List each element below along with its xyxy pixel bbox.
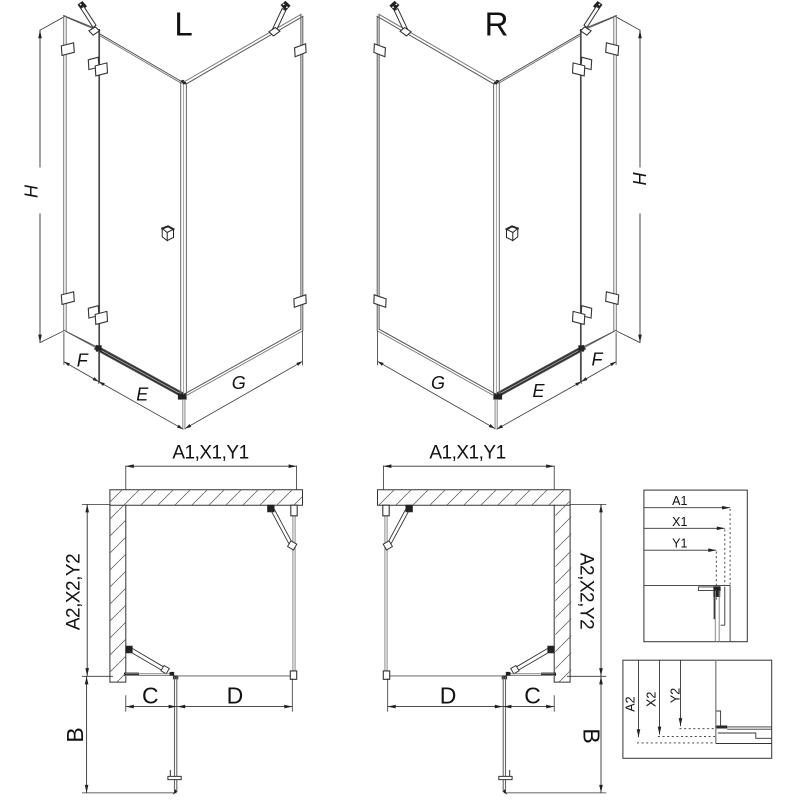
svg-text:C: C: [524, 683, 541, 709]
svg-text:Y1: Y1: [672, 537, 687, 551]
svg-text:E: E: [532, 381, 545, 401]
svg-text:X1: X1: [672, 515, 687, 529]
svg-text:D: D: [227, 683, 244, 709]
svg-text:A1,X1,Y1: A1,X1,Y1: [172, 443, 248, 464]
svg-text:F: F: [77, 350, 89, 370]
svg-text:A2,X2,Y2: A2,X2,Y2: [576, 553, 597, 629]
svg-text:G: G: [431, 373, 445, 393]
svg-text:B: B: [578, 728, 604, 743]
svg-text:D: D: [440, 683, 457, 709]
svg-text:A2,X2,Y2: A2,X2,Y2: [63, 554, 84, 630]
svg-text:R: R: [485, 6, 509, 43]
svg-text:A1,X1,Y1: A1,X1,Y1: [429, 443, 505, 464]
svg-text:Y2: Y2: [668, 688, 682, 703]
svg-text:A1: A1: [672, 494, 687, 508]
svg-text:C: C: [142, 683, 159, 709]
svg-text:X2: X2: [645, 692, 659, 707]
svg-text:F: F: [592, 350, 604, 370]
svg-text:G: G: [232, 373, 246, 393]
svg-text:B: B: [62, 727, 88, 742]
svg-text:H: H: [21, 184, 41, 198]
svg-text:E: E: [136, 385, 149, 405]
svg-text:L: L: [174, 6, 192, 43]
svg-text:H: H: [629, 172, 649, 186]
svg-text:A2: A2: [624, 696, 638, 711]
